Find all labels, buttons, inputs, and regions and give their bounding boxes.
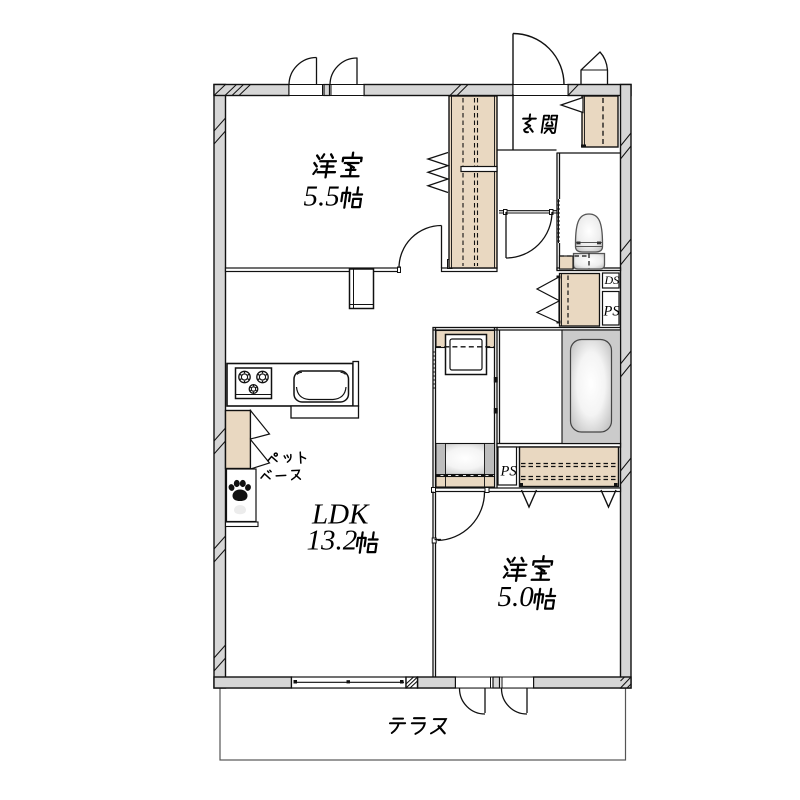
svg-text:13.2: 13.2 [307, 525, 358, 557]
svg-text:PS: PS [603, 304, 621, 320]
svg-text:PS: PS [500, 464, 518, 480]
svg-text:5.0: 5.0 [498, 581, 535, 613]
svg-text:5.5: 5.5 [304, 181, 340, 213]
svg-text:DS: DS [604, 273, 620, 287]
